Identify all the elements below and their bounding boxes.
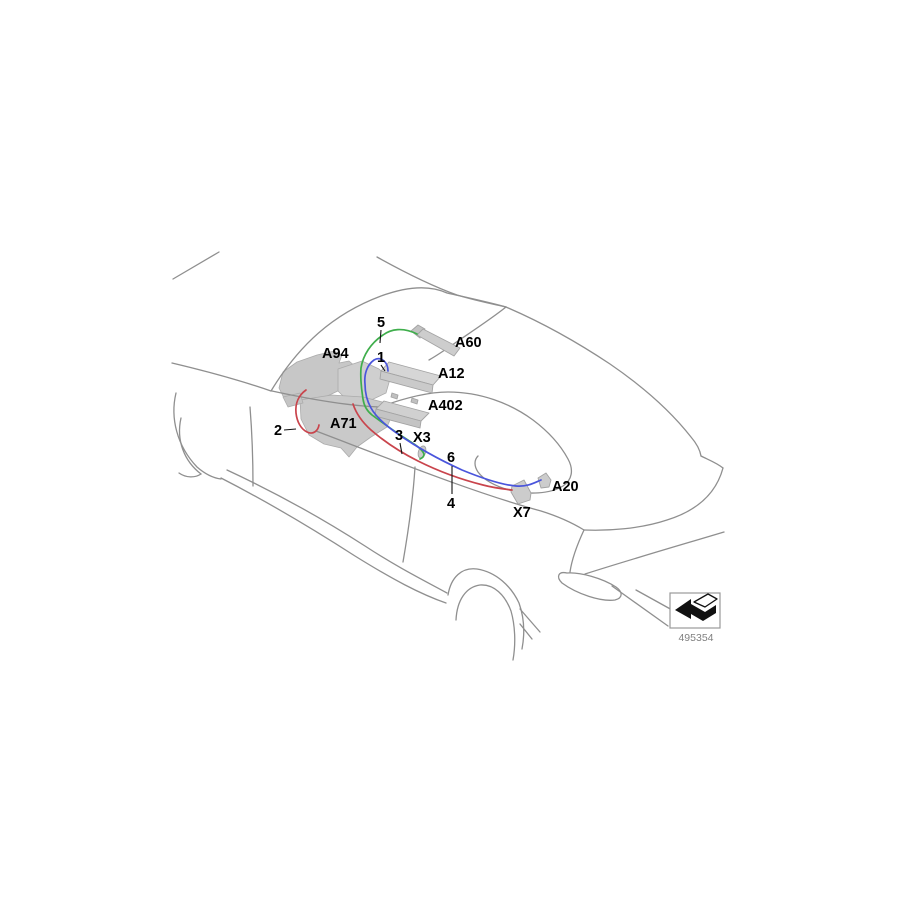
front-door-edge	[250, 407, 253, 486]
module-a12-foot-2	[411, 398, 418, 404]
hood-front-line	[172, 363, 271, 391]
trunk-lid-sweep	[584, 468, 723, 530]
legend: 495354	[670, 593, 720, 644]
hood-edge-line	[173, 252, 219, 279]
rear-wheel	[456, 585, 515, 660]
label-x7: X7	[513, 505, 531, 521]
module-a12-foot-1	[391, 393, 398, 399]
rear-wheel-arch	[448, 569, 524, 649]
leader-2	[284, 429, 296, 430]
callout-5[interactable]: 5	[377, 315, 385, 331]
label-x3: X3	[413, 430, 431, 446]
rear-fascia-line-4	[520, 624, 532, 639]
callout-6[interactable]: 6	[447, 450, 455, 466]
callout-4[interactable]: 4	[447, 496, 455, 512]
label-a402: A402	[428, 398, 463, 414]
callout-1[interactable]: 1	[377, 350, 385, 366]
parts-diagram-page: A94 A60 A12 A402 A71 X3 X7 A20 5 1 2 3 6…	[0, 0, 900, 900]
vehicle-wiring-diagram: A94 A60 A12 A402 A71 X3 X7 A20 5 1 2 3 6…	[0, 0, 900, 900]
connector-x7-shape	[511, 480, 531, 504]
front-wheel-arch	[174, 393, 221, 479]
rear-deck-line	[585, 532, 724, 574]
door-shut-line	[403, 467, 415, 562]
label-a71: A71	[330, 416, 357, 432]
callout-3[interactable]: 3	[395, 428, 403, 444]
label-a94: A94	[322, 346, 349, 362]
leader-5	[380, 330, 381, 343]
near-roof-edge	[377, 257, 506, 307]
roofline-c-pillar	[506, 307, 701, 456]
trunk-top-line	[701, 456, 723, 468]
rear-panel-line	[570, 530, 584, 572]
near-a-pillar	[429, 307, 506, 360]
label-a20: A20	[552, 479, 579, 495]
label-a60: A60	[455, 335, 482, 351]
rocker-sill-upper	[227, 470, 447, 593]
callout-2[interactable]: 2	[274, 423, 282, 439]
label-a12: A12	[438, 366, 465, 382]
module-a60-shape	[417, 329, 460, 356]
diagram-part-number: 495354	[678, 632, 713, 644]
